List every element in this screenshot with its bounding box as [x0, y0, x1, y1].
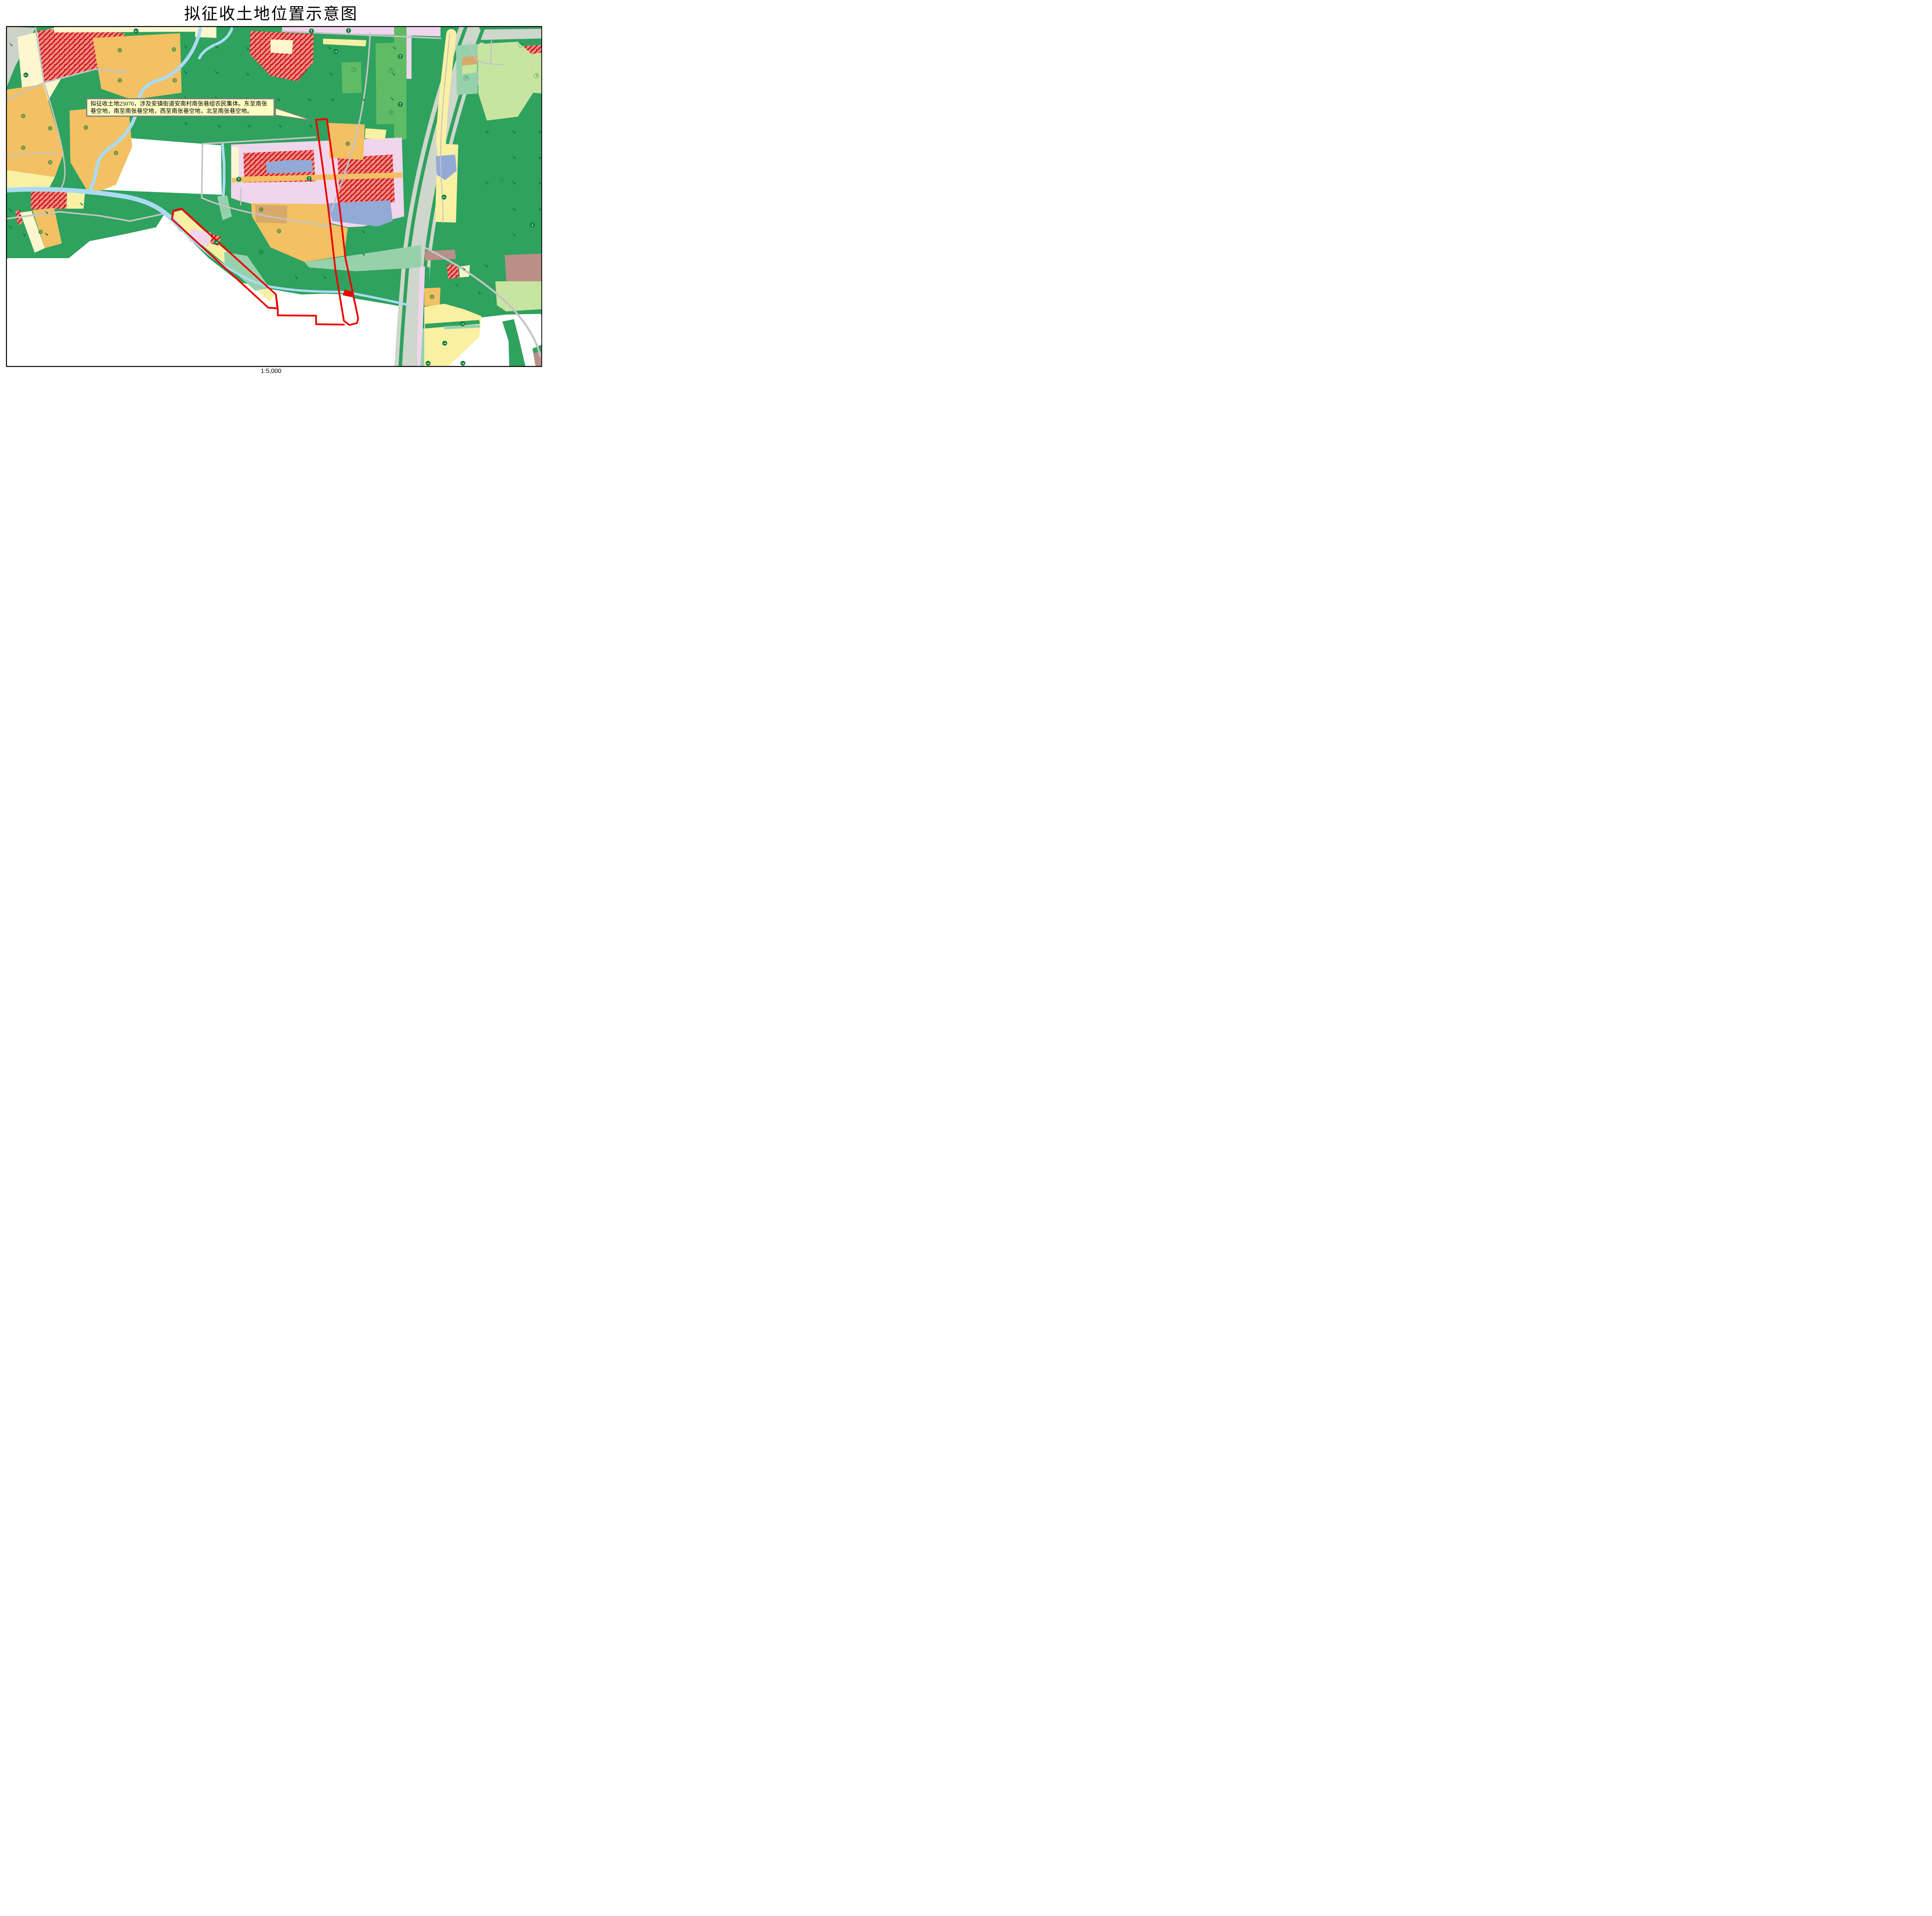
farmland-arrow-icon: ↘	[214, 44, 219, 50]
farmland-arrow-icon: ↘	[485, 129, 489, 135]
farmland-arrow-icon: ↘	[278, 123, 282, 129]
svg-text:→: →	[443, 341, 446, 345]
farmland-arrow-icon: ↘	[537, 180, 542, 186]
parcel	[342, 62, 362, 94]
svg-text:←: ←	[134, 29, 138, 33]
farmland-arrow-icon: ↘	[214, 70, 219, 76]
parcel	[328, 123, 365, 160]
farmland-arrow-icon: ↘	[537, 207, 542, 213]
page-title: 拟征收土地位置示意图	[0, 1, 542, 24]
landuse-arrow-circle-icon: ↑	[236, 177, 241, 182]
landuse-arrow-circle-icon: ↑	[307, 176, 312, 181]
parcel-hatched	[338, 155, 395, 204]
landuse-arrow-circle-icon: →	[333, 49, 338, 54]
svg-text:↑: ↑	[310, 29, 313, 33]
svg-text:↑: ↑	[308, 177, 311, 181]
farmland-arrow-icon: ↘	[184, 121, 188, 127]
road	[202, 144, 202, 198]
parcel	[394, 27, 406, 140]
farmland-arrow-icon: ↘	[8, 208, 12, 213]
farmland-arrow-icon: ↘	[485, 180, 489, 186]
svg-text:→: →	[215, 240, 218, 245]
map-canvas: ↘↘↘↘↘↘↘↘↘↘↘↘↘↘↘↘↘↘↘↘↘↘↘↘↘↘↘↘↘↘↘↘↘↘↘↘↘↘↘↘…	[0, 0, 542, 383]
parcel	[495, 281, 542, 311]
parcel	[532, 53, 542, 94]
parcel	[365, 128, 386, 140]
landuse-arrow-circle-icon: ↓	[530, 223, 535, 228]
farmland-arrow-icon: ↘	[247, 123, 251, 129]
farmland-arrow-icon: ↘	[276, 97, 281, 103]
farmland-arrow-icon: ↘	[309, 123, 313, 129]
landuse-arrow-circle-icon: →	[442, 341, 447, 346]
farmland-arrow-icon: ↘	[512, 155, 516, 161]
farmland-arrow-icon: ↘	[512, 129, 516, 135]
svg-text:↑: ↑	[399, 54, 402, 59]
farmland-arrow-icon: ↘	[245, 46, 250, 52]
farmland-arrow-icon: ↘	[484, 263, 488, 269]
landuse-arrow-circle-icon: →	[461, 361, 466, 366]
parcel	[232, 147, 239, 178]
farmland-arrow-icon: ↘	[361, 252, 366, 257]
farmland-arrow-icon: ↘	[294, 275, 298, 281]
landuse-arrow-circle-icon: →	[460, 322, 465, 327]
road	[491, 41, 492, 64]
farmland-arrow-icon: ↘	[361, 229, 366, 235]
farmland-arrow-icon: ↘	[184, 44, 188, 50]
landuse-arrow-circle-icon: ←	[24, 73, 29, 78]
branch-green-bottom	[479, 40, 542, 41]
farmland-arrow-icon: ↘	[537, 129, 542, 135]
farmland-arrow-icon: ↘	[477, 290, 481, 296]
svg-text:→: →	[461, 361, 464, 366]
landuse-arrow-circle-icon: →	[214, 240, 219, 245]
farmland-arrow-icon: ↘	[184, 70, 188, 76]
landuse-arrow-circle-icon: ↑	[398, 102, 403, 107]
farmland-arrow-icon: ↘	[22, 232, 26, 238]
farmland-arrow-icon: ↘	[307, 97, 311, 103]
landuse-arrow-circle-icon: ↑	[346, 28, 351, 33]
farmland-arrow-icon: ↘	[455, 282, 459, 288]
landuse-arrow-circle-icon: ←	[134, 29, 139, 34]
farmland-arrow-icon: ↘	[8, 225, 12, 230]
farmland-arrow-icon: ↘	[245, 71, 250, 77]
callout-line1: 拟征收土地25070，涉及安镇街道安南村南张巷组农民集体。东至南	[90, 101, 262, 107]
svg-text:↑: ↑	[237, 177, 240, 182]
canal	[223, 145, 224, 196]
farmland-arrow-icon: ↘	[79, 201, 83, 207]
farmland-arrow-icon: ↘	[537, 155, 542, 161]
pond	[266, 160, 313, 173]
highway-branch	[479, 33, 542, 35]
farmland-arrow-icon: ↘	[512, 232, 516, 238]
parcel	[54, 27, 195, 32]
farmland-arrow-icon: ↘	[323, 275, 327, 281]
parcel	[270, 39, 293, 54]
svg-text:→: →	[427, 361, 430, 366]
svg-text:↑: ↑	[399, 102, 402, 107]
farmland-arrow-icon: ↘	[462, 266, 466, 272]
svg-text:→: →	[461, 322, 464, 326]
farmland-arrow-icon: ↘	[512, 180, 516, 186]
parcel	[93, 33, 182, 100]
farmland-arrow-icon: ↘	[512, 207, 516, 213]
svg-text:←: ←	[24, 73, 27, 77]
parcel	[462, 64, 477, 74]
scale-label: 1:5,000	[0, 368, 542, 375]
land-use-map: ↘↘↘↘↘↘↘↘↘↘↘↘↘↘↘↘↘↘↘↘↘↘↘↘↘↘↘↘↘↘↘↘↘↘↘↘↘↘↘↘…	[0, 0, 542, 383]
landuse-arrow-circle-icon: ↑	[398, 54, 403, 59]
farmland-arrow-icon: ↘	[327, 45, 332, 51]
farmland-arrow-icon: ↘	[44, 210, 49, 216]
callout-box: 拟征收土地25070，涉及安镇街道安南村南张巷组农民集体。东至南张巷空地，南至南…	[86, 98, 275, 117]
svg-text:←: ←	[442, 195, 446, 199]
landuse-arrow-circle-icon: ←	[442, 195, 447, 200]
farmland-arrow-icon: ↘	[44, 231, 49, 237]
svg-text:↓: ↓	[531, 223, 534, 227]
branch-green-top	[481, 27, 542, 28]
farmland-arrow-icon: ↘	[361, 97, 366, 103]
parcel	[505, 254, 542, 281]
svg-text:→: →	[334, 49, 337, 54]
svg-text:↑: ↑	[347, 29, 350, 33]
farmland-arrow-icon: ↘	[390, 96, 394, 102]
farmland-arrow-icon: ↘	[329, 71, 333, 77]
landuse-arrow-circle-icon: →	[426, 361, 431, 366]
farmland-arrow-icon: ↘	[217, 123, 221, 129]
landuse-arrow-circle-icon: ↑	[309, 29, 314, 34]
farmland-arrow-icon: ↘	[330, 97, 335, 103]
farmland-arrow-icon: ↘	[9, 42, 13, 48]
farmland-arrow-icon: ↘	[392, 45, 396, 51]
